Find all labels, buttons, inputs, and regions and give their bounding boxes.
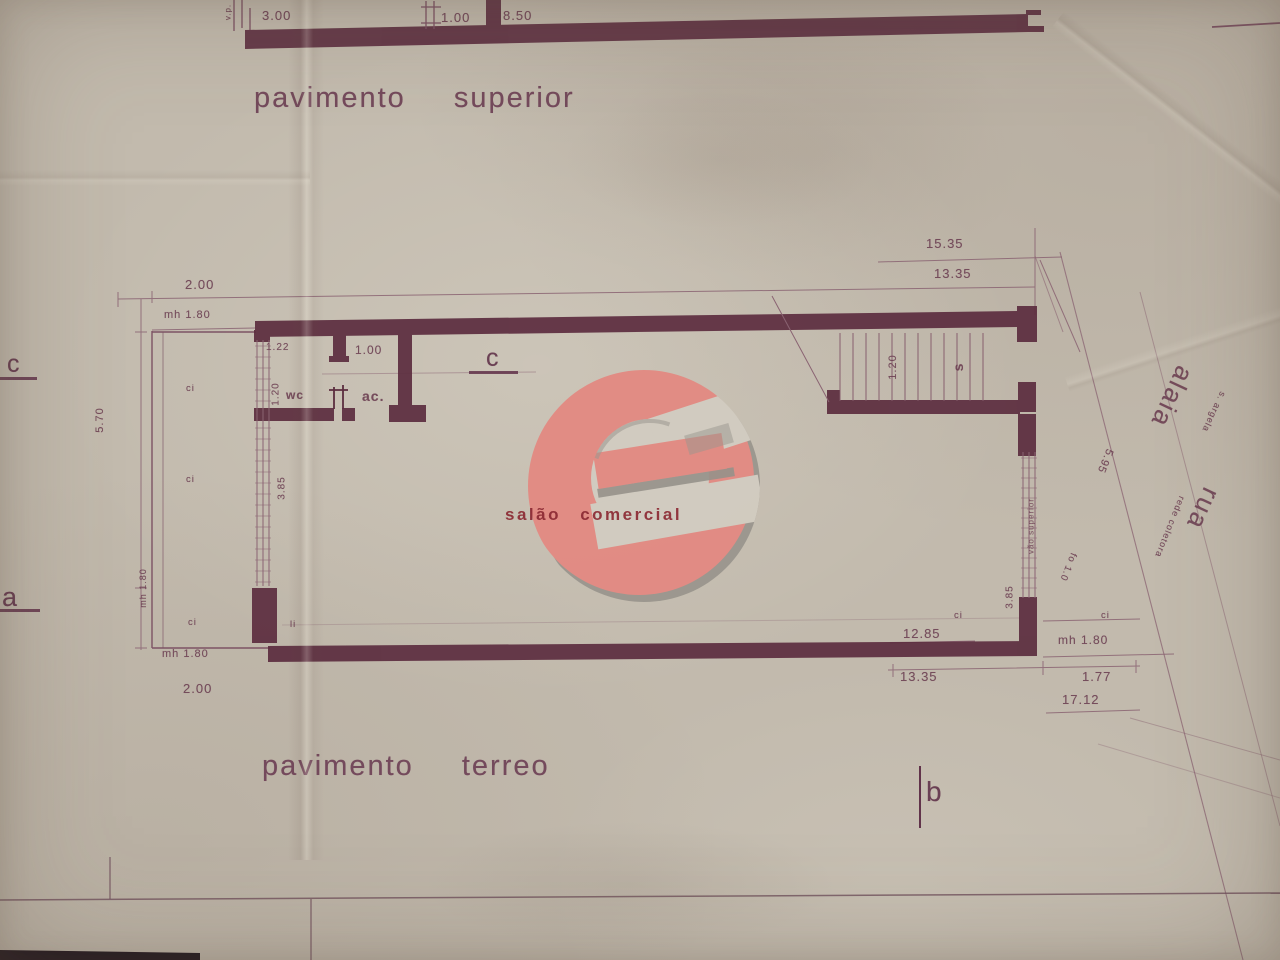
street-lines: [1035, 252, 1280, 960]
wall-left-top-stub: [254, 330, 270, 342]
dim-1-20-stair: 1.20: [887, 354, 899, 379]
dim-mh-180-bottom: mh 1.80: [1058, 633, 1108, 647]
ci-label-5: ci: [1101, 610, 1110, 621]
hall-label: salão comercial: [505, 505, 682, 525]
upper-wall-horizontal: [245, 14, 1028, 49]
dim-mh-180-top: mh 1.80: [164, 309, 211, 321]
wall-top: [255, 311, 1019, 337]
dim-2-00-top: 2.00: [185, 277, 214, 292]
upper-door-jamb-b: [1026, 26, 1044, 32]
pillar-stair-right: [1018, 382, 1036, 412]
li-label: li: [290, 619, 296, 630]
dim-17-12: 17.12: [1062, 692, 1100, 707]
dim-1-00-upper: 1.00: [441, 10, 470, 25]
dim-13-35-top: 13.35: [934, 266, 972, 281]
dim-3-00: 3.00: [262, 8, 291, 23]
upper-right-edge-line: [1212, 23, 1280, 27]
ac-label: ac.: [362, 388, 384, 404]
watermark-logo: [528, 370, 760, 602]
scan-edge-strip: [0, 950, 200, 960]
dim-3-85-left: 3.85: [277, 476, 288, 499]
ci-label-4: ci: [954, 610, 963, 621]
dim-line-top-total: [878, 257, 1062, 262]
street-line-3: [1035, 256, 1063, 332]
street-line-1: [1060, 252, 1243, 960]
dim-15-35: 15.35: [926, 236, 964, 251]
dim-line-right-b: [1043, 654, 1174, 657]
hall-faint-line: [282, 618, 1020, 625]
upper-wall-vertical: [486, 0, 501, 41]
window-note: vão superior: [1027, 498, 1036, 554]
dim-13-35-bottom: 13.35: [900, 669, 938, 684]
wall-stair-left-jog: [827, 390, 840, 402]
ci-label-2: ci: [186, 474, 195, 485]
sheet-border: [0, 857, 1280, 960]
wall-bottom: [268, 641, 1037, 662]
sheet-line-horizontal: [0, 893, 1280, 900]
wall-wc-bottom-b: [342, 408, 355, 421]
stair-symbol-upper: [421, 1, 441, 29]
section-c-left-underline: [0, 377, 37, 380]
dim-1-22: 1.22: [266, 342, 289, 353]
wall-wc-divider: [398, 333, 412, 411]
ci-label-3: ci: [188, 617, 197, 628]
dim-1-20-wc: 1.20: [271, 382, 282, 405]
upper-plan-walls: [245, 0, 1044, 49]
dim-2-00-bottom: 2.00: [183, 681, 212, 696]
section-b-label: b: [926, 776, 942, 808]
wc-door-ticks: [329, 385, 348, 409]
section-a-left-underline: [0, 609, 40, 612]
upper-plan-title: pavimento superior: [254, 82, 575, 115]
dim-line-top-inner: [118, 287, 1035, 299]
dim-3-85-right: 3.85: [1005, 585, 1016, 608]
section-c-plan-underline: [469, 371, 518, 374]
stair-label: s: [950, 363, 966, 372]
ci-label-1: ci: [186, 383, 195, 394]
wall-stair-bottom: [827, 400, 1020, 414]
pillar-top-right: [1017, 306, 1037, 342]
dim-1-77: 1.77: [1082, 669, 1111, 684]
pillar-left-lower: [252, 588, 277, 643]
dim-line-mh-top: [152, 328, 255, 330]
vp-lines: [234, 0, 242, 31]
section-c-left: c: [7, 350, 20, 379]
vp-label: v.p.: [224, 4, 233, 20]
wall-wc-bottom-a: [254, 408, 334, 421]
dim-mh-180-corr: mh 1.80: [162, 648, 209, 660]
wall-wc-divider-foot: [389, 405, 426, 422]
dim-5-70: 5.70: [94, 407, 106, 432]
ground-plan-title: pavimento terreo: [262, 750, 550, 783]
left-window-band: [255, 340, 271, 586]
stair-diagonal: [772, 296, 829, 402]
dim-12-85: 12.85: [903, 626, 941, 641]
dim-line-total-bottom: [1046, 710, 1140, 713]
dim-1-00-door: 1.00: [355, 343, 382, 357]
pillar-right-upper: [1018, 414, 1036, 456]
dim-mh-180-mid: mh 1.80: [138, 568, 148, 608]
upper-door-jamb-a: [1026, 10, 1041, 15]
wall-wc-stub: [333, 334, 346, 359]
section-c-plan: c: [486, 344, 499, 373]
dim-line-right-a: [1043, 619, 1140, 621]
blueprint-sheet: 3.00 1.00 8.50 v.p. pavimento superior 1…: [0, 0, 1280, 960]
wc-label: wc: [286, 388, 304, 402]
dim-8-50: 8.50: [503, 8, 532, 23]
wall-wc-stub-foot: [329, 356, 349, 362]
